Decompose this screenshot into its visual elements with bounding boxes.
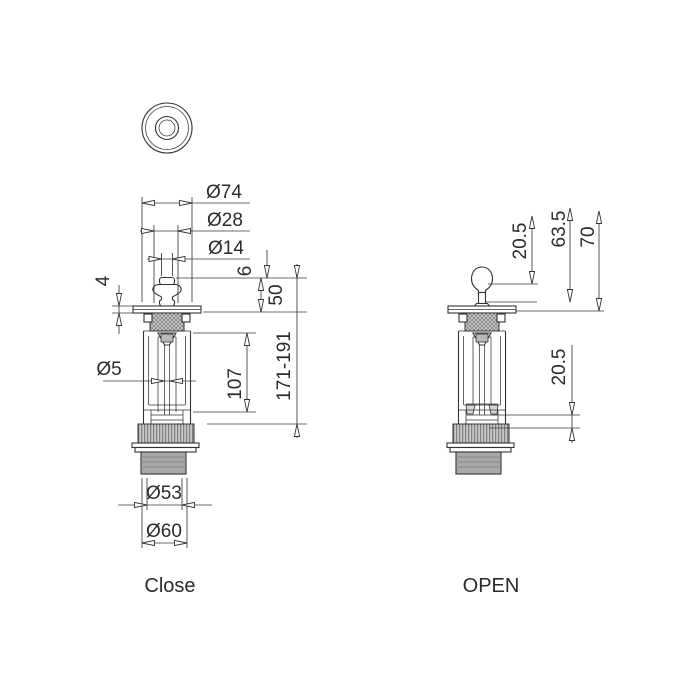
close-valve <box>132 278 201 475</box>
open-lower-rings <box>459 405 505 424</box>
top-view-ring <box>146 107 189 150</box>
technical-drawing: Ø74 Ø28 Ø14 4 Ø5 6 50 171-191 <box>0 0 700 700</box>
open-washer-1 <box>447 443 514 448</box>
drawing-page: Ø74 Ø28 Ø14 4 Ø5 6 50 171-191 <box>0 0 700 700</box>
open-caption: OPEN <box>463 575 520 597</box>
dim-label-171-191: 171-191 <box>274 331 295 401</box>
close-rod <box>165 345 170 415</box>
dim-label-open-70: 70 <box>578 226 599 247</box>
top-view-center-hole <box>159 120 175 136</box>
dim-label-dia28: Ø28 <box>207 210 243 231</box>
top-view <box>142 103 192 153</box>
dim-label-dia5: Ø5 <box>96 359 121 380</box>
open-dimensions: 20.5 63.5 70 20.5 <box>486 208 604 443</box>
close-dimensions: Ø74 Ø28 Ø14 4 Ø5 6 50 171-191 <box>93 182 307 548</box>
open-plug-core <box>476 334 488 342</box>
close-lower-rings <box>144 405 190 424</box>
dim-label-4: 4 <box>93 275 114 286</box>
dim-label-dia60: Ø60 <box>146 521 182 542</box>
open-seal-left <box>466 405 475 414</box>
close-collar-tab-right <box>182 314 190 322</box>
open-valve <box>447 267 516 474</box>
close-caption: Close <box>144 575 195 597</box>
close-collar <box>150 313 184 331</box>
top-view-outer-circle <box>142 103 192 153</box>
open-rod <box>480 345 485 415</box>
open-knob <box>472 267 493 293</box>
open-threaded-tail <box>456 452 501 474</box>
open-knob-stem <box>479 293 486 304</box>
dim-label-dia53: Ø53 <box>146 483 182 504</box>
dim-label-open-205-top: 20.5 <box>510 223 531 260</box>
dim-label-6: 6 <box>235 266 256 277</box>
open-collar <box>465 313 499 331</box>
close-washer-1 <box>132 443 199 448</box>
close-washer-2 <box>135 448 196 453</box>
dim-label-107: 107 <box>225 368 246 400</box>
close-plug-core <box>161 334 173 342</box>
dim-label-open-635: 63.5 <box>549 211 570 248</box>
close-collar-tab-left <box>144 314 152 322</box>
open-collar-tab-left <box>459 314 467 322</box>
close-knob-cap <box>160 278 175 285</box>
open-washer-2 <box>450 448 511 453</box>
close-knob <box>153 285 181 307</box>
close-backnut <box>138 424 194 443</box>
dim-label-open-205-bottom: 20.5 <box>549 349 570 386</box>
captions: Close OPEN <box>144 575 519 597</box>
open-collar-tab-right <box>497 314 505 322</box>
open-backnut <box>453 424 509 443</box>
open-seal-right <box>489 405 498 414</box>
dim-label-dia74: Ø74 <box>206 182 242 203</box>
dim-label-50: 50 <box>266 284 287 305</box>
close-threaded-tail <box>141 452 186 474</box>
dim-label-dia14: Ø14 <box>208 238 244 259</box>
